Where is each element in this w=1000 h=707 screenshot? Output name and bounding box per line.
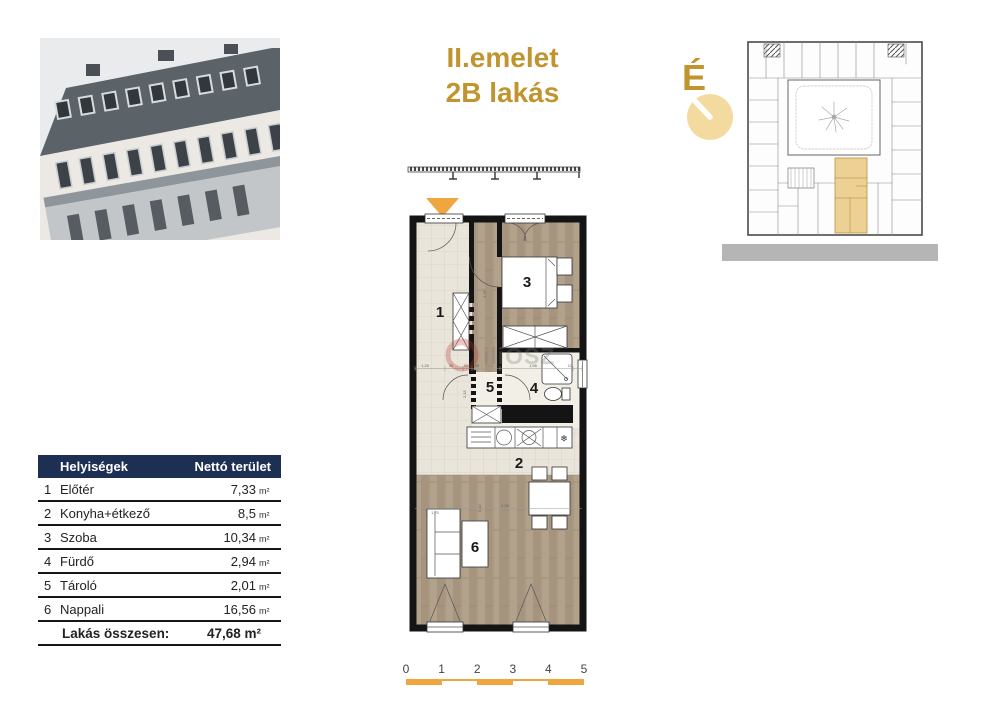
svg-text:5,42: 5,42 bbox=[477, 503, 482, 512]
svg-text:10: 10 bbox=[568, 363, 573, 368]
room-label-6: 6 bbox=[471, 539, 479, 556]
col-area: Nettó terület bbox=[194, 459, 271, 474]
main-floorplan: ❄ bbox=[405, 160, 595, 660]
street-bar bbox=[722, 244, 938, 261]
fridge-icon: ❄ bbox=[560, 434, 568, 444]
svg-text:2,15: 2,15 bbox=[462, 389, 467, 398]
table-row: 5 Tároló 2,01 m² bbox=[38, 574, 281, 598]
toilet bbox=[545, 388, 571, 401]
svg-text:1,70: 1,70 bbox=[431, 510, 440, 515]
svg-text:1,26: 1,26 bbox=[421, 363, 430, 368]
table-header: Helyiségek Nettó terület bbox=[38, 455, 281, 478]
bathroom-window bbox=[578, 360, 587, 388]
room-label-3: 3 bbox=[523, 274, 531, 291]
highlighted-apartment bbox=[835, 158, 867, 233]
floorplan-sheet: { "theme": { "gold": "#c0952f", "accent"… bbox=[0, 0, 1000, 707]
room-label-2: 2 bbox=[515, 455, 523, 472]
table-row: 3 Szoba 10,34 m² bbox=[38, 526, 281, 550]
table-row: 6 Nappali 16,56 m² bbox=[38, 598, 281, 622]
area-table: Helyiségek Nettó terület 1 Előtér 7,33 m… bbox=[38, 455, 281, 646]
room-label-5: 5 bbox=[486, 379, 494, 396]
table-row: 4 Fürdő 2,94 m² bbox=[38, 550, 281, 574]
svg-text:iliOSZ: iliOSZ bbox=[483, 343, 555, 369]
overview-panel: É bbox=[660, 28, 955, 270]
compass-icon bbox=[687, 94, 733, 140]
nightstand bbox=[557, 258, 572, 275]
stairs bbox=[788, 168, 814, 188]
sofa bbox=[427, 509, 460, 578]
title-floor: II.emelet bbox=[380, 40, 625, 75]
room-label-4: 4 bbox=[530, 380, 539, 397]
table-total-row: Lakás összesen: 47,68 m² bbox=[38, 622, 281, 646]
scale-bar: 0 1 2 3 4 5 bbox=[406, 662, 584, 692]
north-label: É bbox=[682, 57, 706, 98]
table-row: 1 Előtér 7,33 m² bbox=[38, 478, 281, 502]
scale-numbers: 0 1 2 3 4 5 bbox=[406, 662, 584, 677]
shaft-wall bbox=[502, 405, 573, 423]
table-row: 2 Konyha+étkező 8,5 m² bbox=[38, 502, 281, 526]
overview-plan bbox=[748, 42, 922, 235]
railing bbox=[408, 167, 580, 179]
room-label-1: 1 bbox=[436, 304, 444, 321]
building-photo bbox=[40, 38, 280, 240]
svg-text:3,45: 3,45 bbox=[482, 289, 487, 298]
col-rooms: Helyiségek bbox=[60, 459, 128, 474]
title-unit: 2B lakás bbox=[380, 75, 625, 110]
washing-machine bbox=[472, 406, 501, 423]
page-title: II.emelet 2B lakás bbox=[380, 40, 625, 110]
kitchen-counter: ❄ bbox=[467, 427, 572, 448]
svg-text:4,35: 4,35 bbox=[501, 503, 510, 508]
nightstand bbox=[557, 285, 572, 302]
scale-segments bbox=[406, 679, 584, 685]
